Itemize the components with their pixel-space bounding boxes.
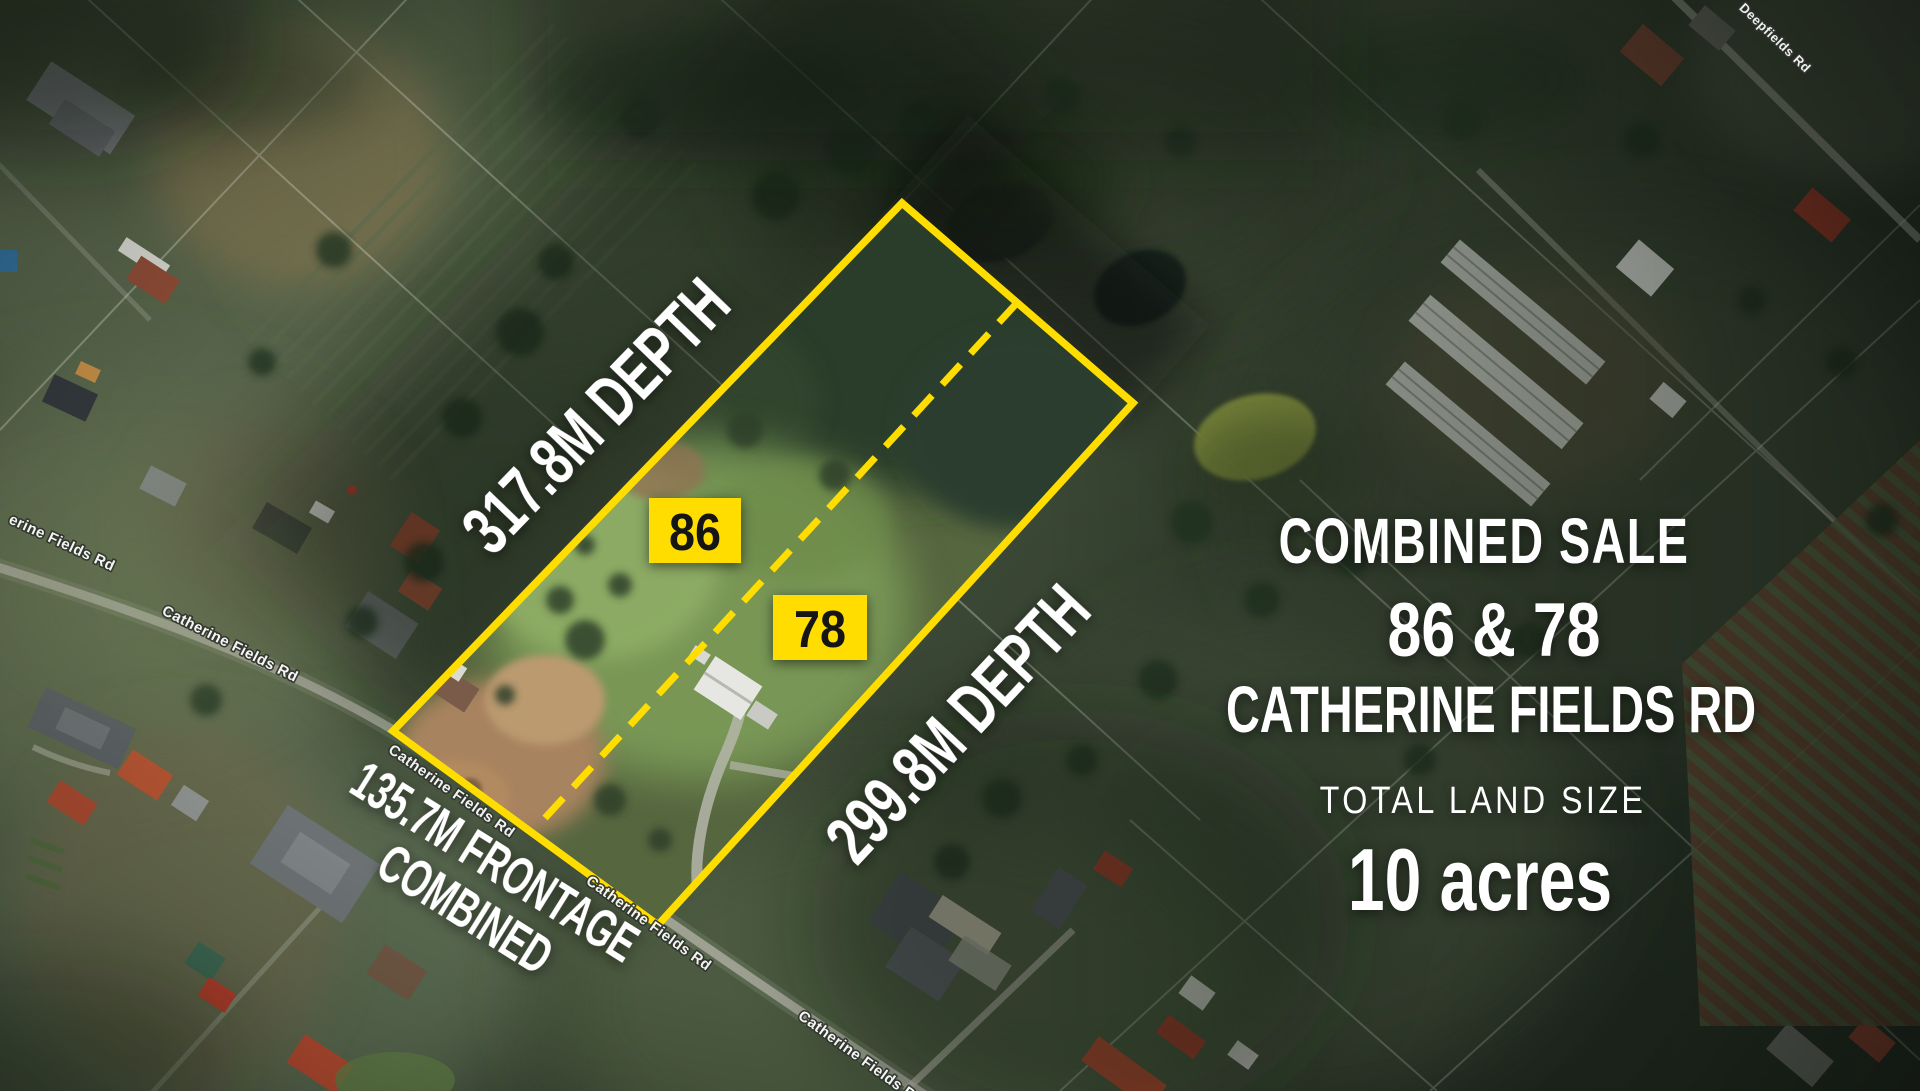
sale-street: CATHERINE FIELDS RD xyxy=(1226,673,1756,747)
land-size-label: TOTAL LAND SIZE xyxy=(1320,780,1647,822)
sale-lot-numbers: 86 & 78 xyxy=(1388,588,1601,673)
lot-78-number: 78 xyxy=(794,601,846,659)
land-size-value: 10 acres xyxy=(1348,832,1612,929)
real-estate-aerial-image: erine Fields Rd Catherine Fields Rd Cath… xyxy=(0,0,1920,1091)
aerial-map: erine Fields Rd Catherine Fields Rd Cath… xyxy=(0,0,1920,1091)
sale-title: COMBINED SALE xyxy=(1279,505,1690,577)
lot-86-number: 86 xyxy=(669,504,721,562)
